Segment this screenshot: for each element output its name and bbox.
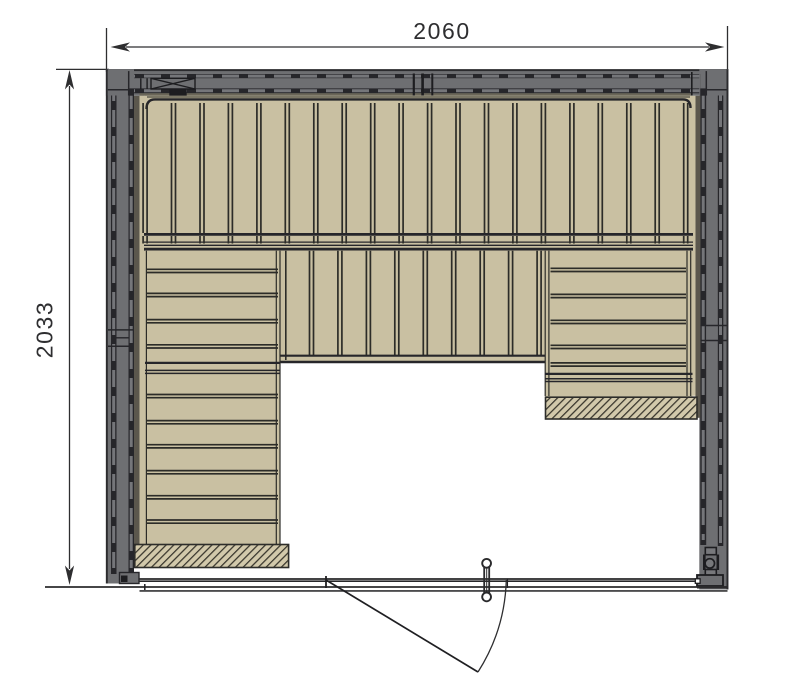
svg-text:2033: 2033 (32, 301, 58, 359)
svg-text:2060: 2060 (413, 18, 471, 44)
